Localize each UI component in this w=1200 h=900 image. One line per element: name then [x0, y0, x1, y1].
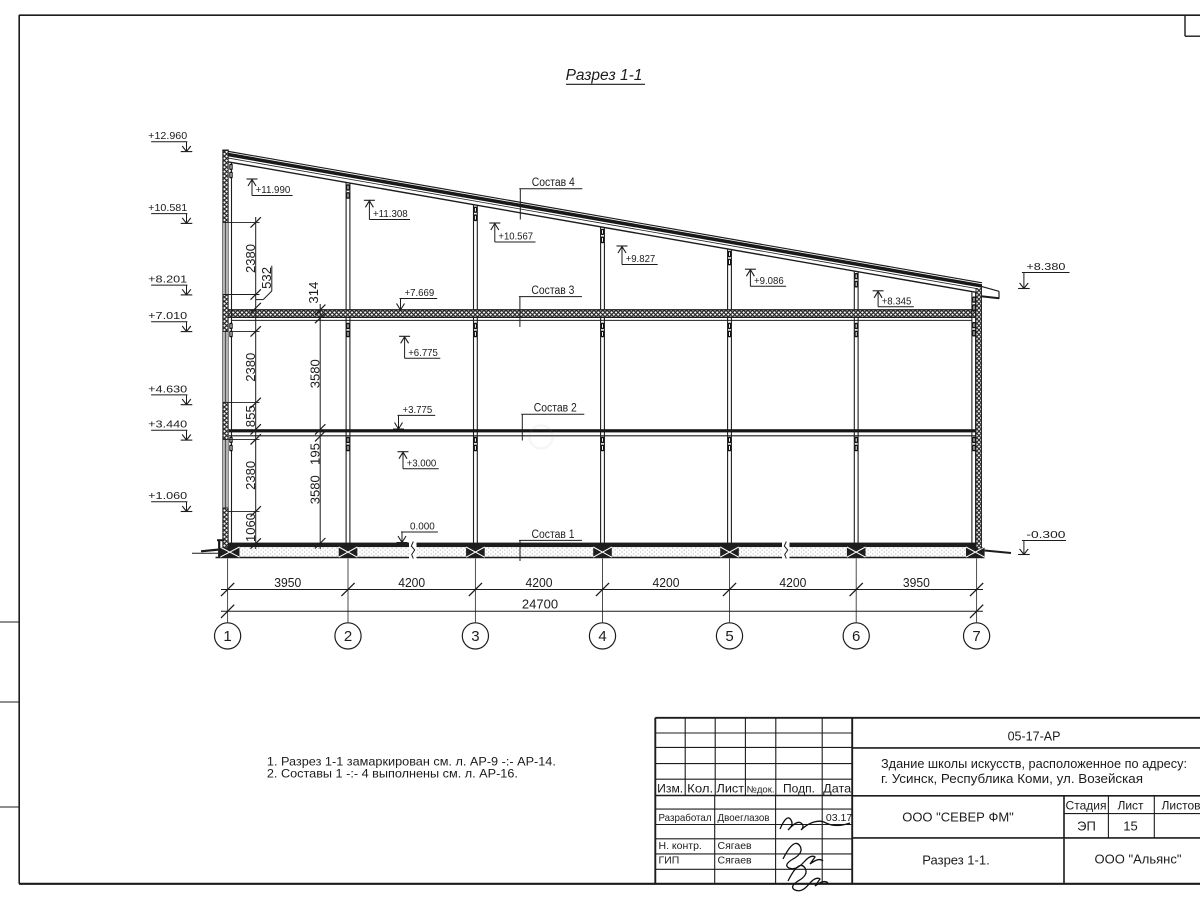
svg-text:4200: 4200 — [779, 575, 806, 590]
svg-text:ООО "СЕВЕР ФМ": ООО "СЕВЕР ФМ" — [902, 810, 1014, 825]
svg-text:-0.300: -0.300 — [1026, 529, 1065, 541]
svg-text:2. Составы 1 -:- 4 выполнены с: 2. Составы 1 -:- 4 выполнены см. л. АР-1… — [267, 766, 518, 780]
svg-text:0.000: 0.000 — [410, 521, 435, 533]
svg-text:Состав 3: Состав 3 — [531, 285, 574, 297]
svg-text:Сягаев: Сягаев — [718, 840, 753, 852]
svg-text:4200: 4200 — [653, 575, 680, 590]
svg-text:4200: 4200 — [398, 575, 425, 590]
svg-text:3: 3 — [471, 628, 479, 645]
svg-text:195: 195 — [308, 443, 323, 465]
svg-text:+8.345: +8.345 — [882, 295, 912, 307]
svg-text:+7.669: +7.669 — [405, 287, 435, 299]
svg-text:Н. контр.: Н. контр. — [659, 840, 702, 852]
svg-text:+1.060: +1.060 — [148, 490, 187, 502]
svg-text:+6.775: +6.775 — [408, 347, 438, 359]
svg-text:ГИП: ГИП — [659, 855, 680, 867]
svg-text:Кол.: Кол. — [687, 781, 713, 795]
svg-text:Лист: Лист — [1117, 799, 1144, 813]
svg-text:Двоеглазов: Двоеглазов — [718, 812, 770, 824]
svg-text:5: 5 — [725, 628, 733, 645]
svg-text:7: 7 — [972, 628, 980, 645]
svg-text:г. Усинск, Республика Коми, ул: г. Усинск, Республика Коми, ул. Возейска… — [881, 771, 1143, 786]
svg-text:Здание школы искусств, располо: Здание школы искусств, расположенное по … — [881, 756, 1187, 771]
svg-text:Разработал: Разработал — [659, 812, 712, 824]
svg-text:Изм.: Изм. — [657, 781, 683, 795]
svg-text:+12.960: +12.960 — [148, 130, 187, 142]
svg-text:15: 15 — [1123, 819, 1137, 834]
svg-text:Разрез 1-1: Разрез 1-1 — [566, 67, 643, 84]
svg-text:ООО "Альянс": ООО "Альянс" — [1095, 852, 1182, 867]
svg-text:1060: 1060 — [243, 513, 258, 542]
svg-text:03.17: 03.17 — [826, 812, 852, 824]
svg-text:+10.581: +10.581 — [148, 202, 187, 214]
svg-text:Состав 2: Состав 2 — [534, 403, 577, 415]
svg-text:05-17-АР: 05-17-АР — [1008, 730, 1061, 744]
svg-text:2: 2 — [344, 628, 352, 645]
svg-text:ЭП: ЭП — [1077, 819, 1096, 834]
svg-text:+3.775: +3.775 — [403, 404, 433, 416]
svg-text:+9.827: +9.827 — [626, 253, 656, 265]
svg-text:+11.990: +11.990 — [256, 184, 291, 196]
svg-text:3580: 3580 — [308, 359, 323, 388]
svg-text:6: 6 — [852, 628, 860, 645]
svg-text:Разрез 1-1.: Разрез 1-1. — [922, 853, 989, 868]
svg-text:2380: 2380 — [243, 353, 258, 382]
svg-text:+7.010: +7.010 — [148, 310, 187, 322]
svg-text:+3.440: +3.440 — [148, 419, 187, 431]
svg-text:+8.380: +8.380 — [1026, 261, 1065, 273]
svg-text:3950: 3950 — [274, 575, 301, 590]
svg-text:Сягаев: Сягаев — [718, 855, 753, 867]
svg-text:+8.201: +8.201 — [148, 274, 187, 286]
svg-text:+11.308: +11.308 — [373, 208, 408, 220]
svg-text:+9.086: +9.086 — [754, 275, 784, 287]
svg-text:2380: 2380 — [243, 461, 258, 490]
svg-text:4200: 4200 — [526, 575, 553, 590]
svg-text:3580: 3580 — [308, 475, 323, 504]
svg-text:+4.630: +4.630 — [148, 383, 187, 395]
svg-text:Состав 1: Состав 1 — [532, 529, 575, 541]
svg-text:2380: 2380 — [243, 244, 258, 273]
svg-text:4: 4 — [598, 628, 606, 645]
svg-text:Дата: Дата — [823, 781, 851, 795]
svg-text:№док.: №док. — [747, 784, 775, 795]
svg-text:Подп.: Подп. — [783, 781, 815, 795]
svg-text:Лист: Лист — [717, 781, 745, 795]
svg-text:+10.567: +10.567 — [498, 231, 533, 243]
svg-text:855: 855 — [243, 405, 258, 427]
svg-text:Состав 4: Состав 4 — [532, 177, 576, 189]
svg-text:3950: 3950 — [903, 575, 930, 590]
svg-text:+3.000: +3.000 — [407, 457, 437, 469]
svg-text:1: 1 — [223, 628, 231, 645]
svg-text:Стадия: Стадия — [1066, 799, 1107, 813]
svg-text:Листов: Листов — [1162, 799, 1200, 813]
svg-text:314: 314 — [306, 282, 321, 304]
svg-text:24700: 24700 — [522, 597, 558, 612]
